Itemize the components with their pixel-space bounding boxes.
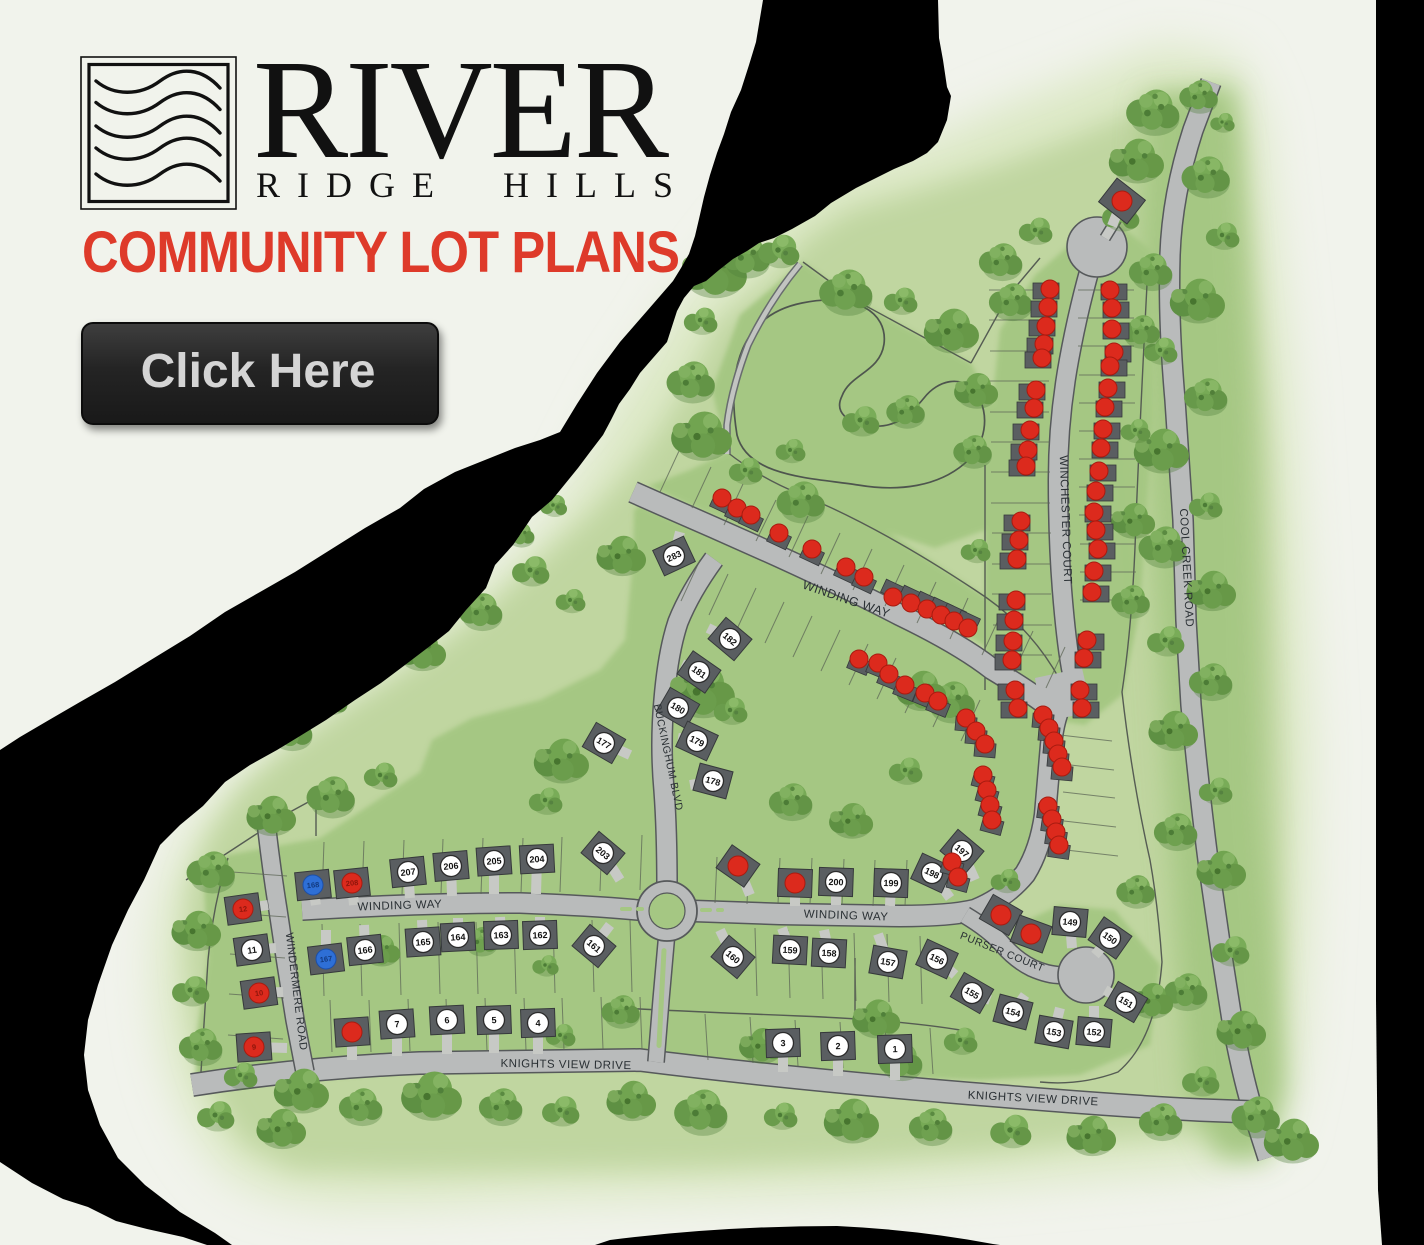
svg-text:149: 149 <box>1062 917 1078 928</box>
svg-text:206: 206 <box>443 861 459 872</box>
svg-text:158: 158 <box>821 948 837 959</box>
svg-text:3: 3 <box>780 1038 785 1048</box>
svg-text:207: 207 <box>400 866 416 878</box>
svg-text:7: 7 <box>394 1019 400 1029</box>
svg-text:9: 9 <box>252 1042 257 1051</box>
svg-text:162: 162 <box>532 930 547 941</box>
svg-text:205: 205 <box>486 856 502 867</box>
svg-text:208: 208 <box>345 878 358 888</box>
svg-text:164: 164 <box>450 932 466 943</box>
svg-text:1: 1 <box>892 1044 897 1054</box>
svg-text:5: 5 <box>491 1015 496 1025</box>
svg-text:159: 159 <box>782 945 798 956</box>
svg-text:2: 2 <box>835 1041 840 1051</box>
svg-text:163: 163 <box>493 930 508 941</box>
svg-text:165: 165 <box>415 937 431 948</box>
svg-text:10: 10 <box>254 988 264 998</box>
svg-text:11: 11 <box>247 945 258 956</box>
svg-text:167: 167 <box>319 954 333 964</box>
svg-text:4: 4 <box>535 1018 540 1028</box>
svg-text:KNIGHTS VIEW DRIVE: KNIGHTS VIEW DRIVE <box>500 1058 631 1072</box>
svg-text:168: 168 <box>306 880 319 890</box>
svg-text:204: 204 <box>529 854 545 865</box>
svg-text:166: 166 <box>357 944 373 956</box>
svg-text:6: 6 <box>444 1015 450 1025</box>
svg-text:200: 200 <box>828 877 843 888</box>
svg-text:152: 152 <box>1086 1027 1102 1038</box>
svg-text:12: 12 <box>238 904 248 914</box>
svg-text:199: 199 <box>883 878 898 889</box>
